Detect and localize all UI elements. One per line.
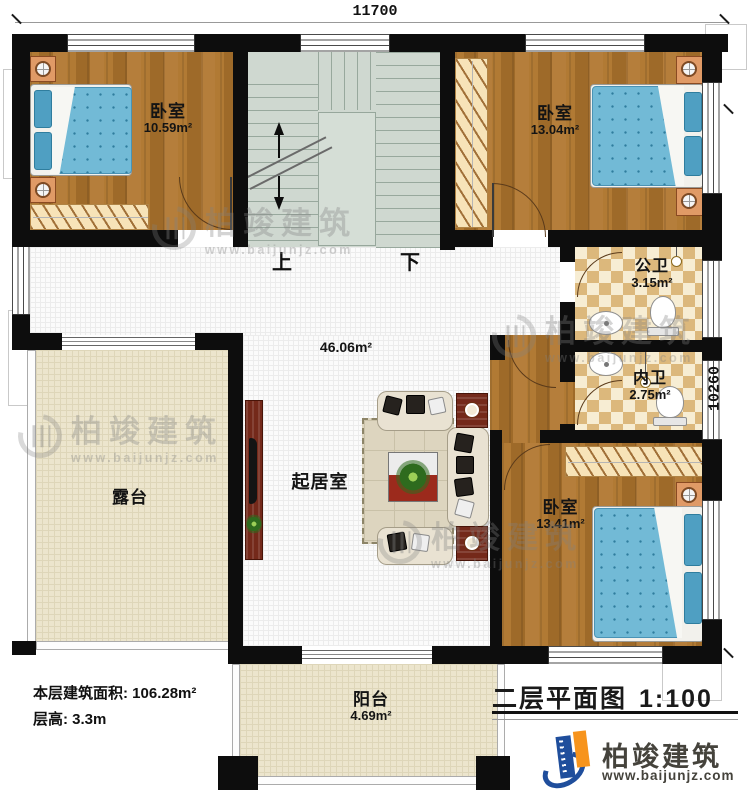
floor-area-value: 106.28m² (132, 685, 196, 702)
lamp-icon (681, 487, 697, 503)
stair-steps (248, 84, 318, 248)
floor-info: 本层建筑面积: 106.28m² 层高: 3.3m (33, 681, 283, 734)
door-leaf (492, 183, 494, 237)
window (548, 646, 663, 664)
room-area: 10.59m² (144, 121, 192, 136)
room-label-bedroom-nw: 卧室 10.59m² (118, 102, 218, 136)
plant (246, 514, 262, 534)
room-label-living-room: 起居室 (268, 472, 372, 492)
title-rule-thin (492, 719, 738, 720)
room-area: 3.15m² (631, 276, 672, 291)
stair-direction-arrow-down (274, 197, 284, 210)
pillow (684, 92, 702, 132)
wall (440, 230, 493, 247)
room-name: 卧室 (543, 498, 579, 517)
wall (663, 646, 722, 664)
room-label-public-bathroom: 公卫 3.15m² (600, 258, 704, 290)
nightstand (30, 177, 56, 203)
cushion (456, 456, 474, 474)
wall (490, 646, 548, 664)
toilet (650, 296, 676, 328)
wall (490, 430, 502, 646)
room-name: 卧室 (537, 104, 573, 123)
room-area: 2.75m² (629, 388, 670, 403)
room-name: 露台 (112, 488, 148, 507)
right-dimension-value: 10260 (707, 357, 724, 421)
room-name: 卧室 (150, 102, 186, 121)
wall (548, 230, 702, 247)
wall (195, 333, 243, 350)
dimension-tick (723, 648, 734, 659)
door-leaf (230, 177, 232, 230)
room-name: 公卫 (635, 258, 669, 276)
nightstand (676, 188, 704, 216)
wall (12, 641, 36, 655)
wall (702, 440, 722, 500)
cushion (428, 397, 447, 416)
bed-sheet (50, 87, 82, 174)
floor-height-value: 3.3m (72, 711, 106, 728)
window (702, 500, 722, 620)
toilet-tank (653, 417, 687, 426)
room-label-bedroom-se: 卧室 13.41m² (508, 498, 613, 532)
stair-arrow-stem (278, 134, 280, 158)
pillow (34, 90, 52, 128)
floor-plan: 11700 10260 (0, 0, 750, 802)
lamp-icon (35, 182, 51, 198)
toilet-tank (647, 327, 679, 336)
corridor-floor (30, 247, 560, 335)
living-room-area-label: 46.06m² (298, 340, 394, 356)
sliding-door (302, 650, 432, 659)
wall (702, 194, 722, 260)
cushion (454, 433, 475, 454)
terrace-railing (36, 641, 232, 650)
pillow (684, 572, 702, 624)
terrace-railing (27, 350, 36, 648)
window (12, 245, 30, 315)
sliding-door (62, 337, 195, 346)
wall (12, 333, 62, 350)
bed-sheet (652, 508, 682, 638)
balcony-railing (240, 776, 497, 785)
wall (432, 646, 490, 664)
brand-website: www.baijunjz.com (602, 768, 748, 783)
title-rule-thick (492, 711, 738, 714)
room-label-private-bathroom: 内卫 2.75m² (598, 370, 702, 402)
plant (396, 460, 430, 494)
stair-steps (376, 52, 440, 248)
wall (12, 34, 30, 245)
wall (12, 230, 178, 247)
room-name: 内卫 (633, 370, 667, 388)
plan-title: 二层平面图 1:100 (492, 679, 738, 715)
lamp-icon (681, 61, 697, 77)
wall (228, 333, 243, 646)
wall (490, 335, 505, 360)
room-name: 起居室 (292, 472, 349, 492)
plan-title-name: 二层平面图 (492, 679, 627, 715)
stair-steps (318, 52, 376, 110)
tv (249, 438, 257, 504)
room-area: 13.04m² (531, 123, 579, 138)
pillow (34, 132, 52, 170)
wall (440, 52, 455, 250)
lamp-icon (35, 61, 51, 77)
wall (390, 34, 525, 52)
floor-height-label: 层高: (33, 711, 68, 728)
cushion (387, 532, 408, 553)
room-label-balcony: 阳台 4.69m² (325, 690, 417, 724)
sink (589, 311, 623, 335)
cushion (454, 477, 474, 497)
wall (228, 646, 302, 664)
window (300, 34, 390, 52)
floor-height-line: 层高: 3.3m (33, 707, 283, 733)
wardrobe (565, 446, 705, 477)
wall (560, 302, 575, 382)
lamp-icon (465, 403, 479, 417)
room-label-terrace: 露台 (88, 488, 172, 507)
window (67, 34, 195, 52)
floor-area-label: 本层建筑面积: (33, 685, 128, 702)
pillow (684, 136, 702, 176)
top-dimension-value: 11700 (300, 3, 450, 20)
window (702, 82, 722, 194)
room-label-bedroom-ne: 卧室 13.04m² (510, 104, 600, 138)
wardrobe (455, 58, 488, 228)
plan-title-scale: 1:100 (639, 685, 713, 714)
nightstand (676, 56, 704, 84)
wall (575, 340, 702, 352)
lamp-icon (681, 193, 697, 209)
stair-landing (318, 112, 376, 246)
window (525, 34, 645, 52)
room-area: 46.06m² (320, 340, 372, 356)
wall (540, 430, 702, 443)
wall (560, 247, 575, 262)
balcony-pillar (218, 756, 258, 790)
room-area: 13.41m² (536, 517, 584, 532)
lamp-icon (465, 536, 479, 550)
wardrobe (30, 204, 149, 230)
room-name: 阳台 (353, 690, 389, 709)
pillow (684, 514, 702, 566)
stairs-up-label: 上 (272, 246, 292, 275)
cushion (406, 395, 425, 414)
bed-sheet (652, 86, 684, 186)
wall (233, 52, 248, 247)
wall (195, 34, 300, 52)
balcony-pillar (476, 756, 510, 790)
floor-area-line: 本层建筑面积: 106.28m² (33, 681, 283, 707)
cushion (411, 533, 430, 552)
stair-arrow-stem (278, 176, 280, 198)
dimension-tick (723, 104, 734, 115)
nightstand (30, 56, 56, 82)
wall (702, 34, 722, 82)
stairs-down-label: 下 (400, 246, 420, 275)
window (702, 260, 722, 338)
top-dimension-line (15, 22, 727, 23)
room-area: 4.69m² (350, 709, 391, 724)
